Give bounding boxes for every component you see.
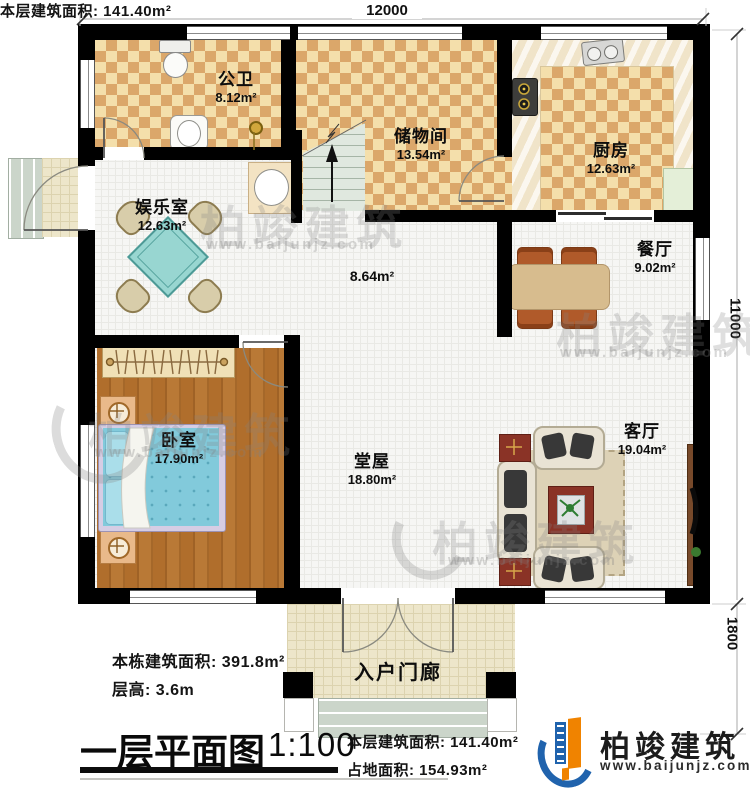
end-table: [499, 558, 531, 586]
dining-table: [508, 264, 610, 310]
coffee-table-glass: [557, 495, 585, 525]
room-name: 入户门廊: [318, 662, 478, 686]
logo-building-orange-small: [562, 768, 569, 781]
room-name: 储物间: [371, 127, 471, 147]
sofa-cushion: [569, 556, 594, 583]
room-label-hall: 堂屋 18.80m²: [322, 452, 422, 487]
room-label-entertainment: 娱乐室 12.63m²: [107, 198, 217, 233]
wardrobe: [102, 346, 235, 378]
room-label-dining: 餐厅 9.02m²: [605, 240, 705, 275]
room-label-porch: 入户门廊: [318, 662, 478, 686]
sofa-cushion: [541, 555, 568, 583]
bed-pillow: [105, 431, 129, 477]
note-footprint: 占地面积: 154.93m²: [347, 759, 487, 780]
sofa-cushion: [541, 432, 568, 460]
vanity-basin: [254, 169, 289, 206]
room-area: 12.63m²: [107, 218, 217, 233]
room-area: 8.12m²: [186, 90, 286, 105]
room-label-bedroom: 卧室 17.90m²: [129, 431, 229, 466]
room-label-living: 客厅 19.04m²: [592, 422, 692, 457]
opening-bedroom-door: [239, 335, 284, 348]
side-porch-steps: [8, 158, 44, 239]
floor-drain-icon: [249, 121, 263, 135]
room-area: 13.54m²: [371, 147, 471, 162]
opening-side-door: [78, 166, 95, 230]
note-floor-area: 本层建筑面积: 141.40m²: [0, 0, 171, 21]
wall-bathroom-south-b: [144, 147, 296, 160]
opening-bathroom-door: [103, 147, 144, 160]
sink-bowl-right: [603, 44, 618, 59]
room-area: 9.02m²: [605, 260, 705, 275]
note-floor-height: 层高: 3.6m: [112, 676, 194, 700]
porch-pillar-left: [283, 672, 313, 698]
window-left-bedroom: [80, 425, 95, 537]
sofa-bottom: [533, 546, 605, 590]
room-name: 餐厅: [605, 240, 705, 260]
scale-label: 1:100: [268, 726, 356, 764]
room-label-storage: 储物间 13.54m²: [371, 127, 471, 162]
wall-stairs-side: [291, 130, 302, 223]
room-label-bathroom: 公卫 8.12m²: [186, 70, 286, 105]
note-floor-area: 本层建筑面积: 141.40m²: [347, 731, 518, 752]
bed-pillow: [105, 479, 129, 525]
floor-plan-page: 公卫 8.12m² 储物间 13.54m² 厨房 12.63m² 娱乐室 12.…: [0, 0, 750, 789]
kitchen-floor: [540, 66, 674, 212]
pedestal-sink-bowl: [177, 120, 201, 147]
room-name: 公卫: [186, 70, 286, 90]
room-label-hallway: 8.64m²: [327, 268, 417, 285]
window-left-bathroom: [80, 60, 95, 128]
dim-right-porch: 1800: [724, 604, 741, 664]
room-name: 卧室: [129, 431, 229, 451]
room-area: 18.80m²: [322, 472, 422, 487]
dim-top: 12000: [352, 2, 422, 19]
coffee-table: [548, 486, 594, 534]
dim-right-main: 11000: [727, 279, 744, 359]
room-area: 8.64m²: [327, 268, 417, 285]
company-logo-icon: [538, 714, 596, 784]
logo-building-blue: [555, 722, 566, 764]
window-bottom-bedroom: [130, 590, 256, 604]
room-name: 厨房: [561, 141, 661, 161]
window-bottom-living: [545, 590, 665, 604]
sofa-cushion: [504, 470, 527, 508]
fridge: [663, 168, 696, 212]
sliding-door-leaf: [558, 212, 606, 215]
sofa-cushion: [504, 514, 527, 552]
sink-bowl-left: [586, 46, 601, 61]
room-area: 12.63m²: [561, 161, 661, 176]
wall-storage-kitchen: [497, 40, 512, 157]
wall-bathroom-south-a: [94, 147, 103, 160]
toilet-icon: [163, 52, 188, 78]
title-rule: [80, 767, 338, 773]
side-porch-floor: [42, 158, 80, 237]
room-label-kitchen: 厨房 12.63m²: [561, 141, 661, 176]
room-name: 堂屋: [322, 452, 422, 472]
window-top-storage: [298, 26, 462, 40]
sliding-door-leaf: [604, 217, 652, 220]
wall-bedroom-north: [94, 335, 239, 348]
gas-stove: [512, 78, 538, 116]
window-top-bathroom: [187, 26, 290, 40]
kitchen-sink: [581, 38, 625, 66]
porch-pillar-base-right: [487, 698, 517, 732]
room-area: 17.90m²: [129, 451, 229, 466]
room-name: 娱乐室: [107, 198, 217, 218]
wall-bedroom-east: [284, 335, 300, 590]
opening-entry-door: [341, 588, 455, 604]
bedside-lamp: [108, 402, 130, 424]
company-logo-url: www.baijunjz.com: [600, 758, 750, 773]
note-building-total: 本栋建筑面积: 391.8m²: [112, 648, 285, 672]
room-name: 客厅: [592, 422, 692, 442]
sofa-left: [497, 460, 537, 564]
wall-dining-hall: [497, 211, 512, 337]
bedside-lamp: [108, 537, 130, 559]
end-table: [499, 434, 531, 462]
window-top-kitchen: [541, 26, 667, 40]
logo-building-orange: [568, 717, 581, 769]
porch-pillar-right: [486, 672, 516, 698]
room-area: 19.04m²: [592, 442, 692, 457]
title-rule-shadow: [80, 778, 448, 780]
